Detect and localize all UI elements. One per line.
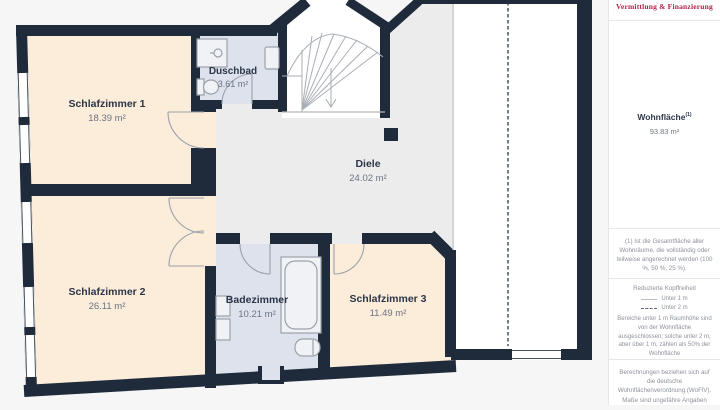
toilet-bowl bbox=[204, 80, 219, 94]
living-area-value: 93.83 m² bbox=[650, 127, 680, 136]
window bbox=[20, 125, 30, 163]
room-area-schlafzimmer-2: 26.11 m² bbox=[89, 301, 126, 312]
living-area-section: Wohnfläche(1) 93.83 m² bbox=[609, 21, 720, 228]
solid-line-sample bbox=[641, 299, 657, 300]
room-area-schlafzimmer-3: 11.49 m² bbox=[370, 308, 407, 319]
room-area-diele: 24.02 m² bbox=[349, 173, 387, 184]
floorplan-page: Schlafzimmer 1 18.39 m² Schlafzimmer 2 2… bbox=[0, 0, 720, 405]
living-area-label: Wohnfläche(1) bbox=[637, 112, 691, 122]
pillar bbox=[384, 128, 398, 141]
toilet bbox=[295, 339, 320, 356]
excluded-headroom-zone bbox=[452, 2, 578, 352]
dashed-line-sample bbox=[641, 308, 657, 309]
floorplan-svg: Schlafzimmer 1 18.39 m² Schlafzimmer 2 2… bbox=[0, 0, 608, 405]
floorplan-canvas: Schlafzimmer 1 18.39 m² Schlafzimmer 2 2… bbox=[0, 0, 608, 405]
room-area-badezimmer: 10.21 m² bbox=[238, 309, 276, 320]
window bbox=[22, 202, 32, 243]
living-area-superscript: (1) bbox=[685, 112, 691, 118]
room-area-duschbad: 3.61 m² bbox=[218, 79, 249, 89]
sink bbox=[216, 319, 230, 340]
legend-item-under-2m: Unter 2 m bbox=[615, 305, 714, 311]
room-label-schlafzimmer-3: Schlafzimmer 3 bbox=[349, 293, 426, 305]
window-bottom-wall bbox=[512, 349, 561, 360]
brand-tagline: Vermittlung & Finanzierung bbox=[609, 0, 720, 21]
room-label-schlafzimmer-2: Schlafzimmer 2 bbox=[68, 286, 145, 298]
living-area-label-text: Wohnfläche bbox=[637, 112, 685, 122]
headroom-legend: Reduzierte Kopffreiheit Unter 1 m Unter … bbox=[609, 279, 720, 359]
room-label-diele: Diele bbox=[355, 158, 380, 170]
legend-label: Unter 1 m bbox=[661, 296, 687, 302]
room-label-duschbad: Duschbad bbox=[209, 66, 257, 77]
legend-description: Bereiche unter 1 m Raumhöhe sind von der… bbox=[615, 315, 714, 358]
info-sidebar: Vermittlung & Finanzierung Wohnfläche(1)… bbox=[608, 0, 720, 405]
room-area-schlafzimmer-1: 18.39 m² bbox=[88, 113, 126, 124]
room-label-schlafzimmer-1: Schlafzimmer 1 bbox=[68, 98, 145, 110]
window bbox=[25, 335, 35, 377]
footnote-calculation: Berechnungen beziehen sich auf die deuts… bbox=[609, 360, 720, 405]
sink bbox=[265, 47, 279, 69]
window bbox=[18, 73, 28, 117]
footnote-living-area: (1) Ist die Gesamtfläche aller Wohnräume… bbox=[609, 229, 720, 280]
window bbox=[24, 287, 34, 327]
legend-label: Unter 2 m bbox=[661, 305, 687, 311]
legend-item-under-1m: Unter 1 m bbox=[615, 296, 714, 302]
room-label-badezimmer: Badezimmer bbox=[226, 294, 288, 306]
legend-title: Reduzierte Kopffreiheit bbox=[615, 285, 714, 292]
room-schlafzimmer1-floor bbox=[22, 30, 196, 190]
